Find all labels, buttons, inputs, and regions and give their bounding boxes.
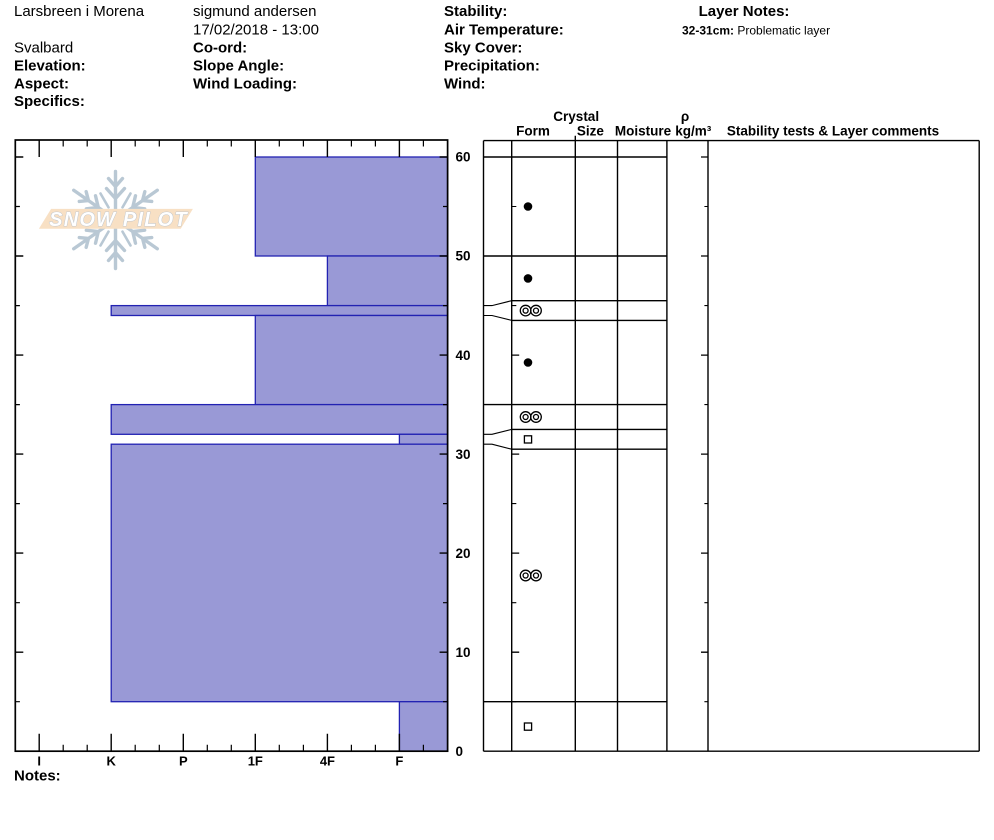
svg-text:sigmund andersen: sigmund andersen <box>193 3 316 20</box>
svg-text:Aspect:: Aspect: <box>14 76 69 93</box>
svg-text:Svalbard: Svalbard <box>14 40 73 57</box>
svg-text:SNOW PILOT: SNOW PILOT <box>49 209 188 231</box>
svg-text:Notes:: Notes: <box>14 768 61 785</box>
svg-text:4F: 4F <box>320 754 335 769</box>
svg-text:Stability tests & Layer commen: Stability tests & Layer comments <box>727 124 939 139</box>
svg-text:10: 10 <box>456 645 471 660</box>
svg-text:17/02/2018 - 13:00: 17/02/2018 - 13:00 <box>193 22 319 39</box>
svg-text:ρ: ρ <box>681 109 689 124</box>
svg-text:20: 20 <box>456 546 471 561</box>
svg-text:0: 0 <box>456 744 464 759</box>
svg-text:Elevation:: Elevation: <box>14 58 86 75</box>
svg-text:K: K <box>107 754 117 769</box>
svg-text:Crystal: Crystal <box>553 109 599 124</box>
svg-text:Layer Notes:: Layer Notes: <box>699 3 790 20</box>
svg-text:50: 50 <box>456 249 471 264</box>
svg-text:F: F <box>395 754 403 769</box>
svg-text:Larsbreen i Morena: Larsbreen i Morena <box>14 3 145 20</box>
svg-text:30: 30 <box>456 447 471 462</box>
svg-text:Size: Size <box>577 124 605 139</box>
svg-text:60: 60 <box>456 150 471 165</box>
svg-text:Form: Form <box>516 124 550 139</box>
svg-text:Wind Loading:: Wind Loading: <box>193 76 297 93</box>
svg-text:40: 40 <box>456 348 471 363</box>
svg-text:I: I <box>37 754 41 769</box>
svg-text:Precipitation:: Precipitation: <box>444 58 540 75</box>
svg-text:Moisture: Moisture <box>615 124 672 139</box>
svg-text:1F: 1F <box>248 754 263 769</box>
svg-text:Slope Angle:: Slope Angle: <box>193 58 284 75</box>
svg-text:Air Temperature:: Air Temperature: <box>444 22 564 39</box>
svg-text:Stability:: Stability: <box>444 3 507 20</box>
svg-text:32-31cm: Problematic layer: 32-31cm: Problematic layer <box>682 24 830 38</box>
svg-text:kg/m³: kg/m³ <box>675 124 712 139</box>
svg-text:Specifics:: Specifics: <box>14 93 85 110</box>
svg-text:Wind:: Wind: <box>444 76 486 93</box>
svg-text:P: P <box>179 754 188 769</box>
svg-text:Co-ord:: Co-ord: <box>193 40 247 57</box>
svg-text:Sky Cover:: Sky Cover: <box>444 40 522 57</box>
